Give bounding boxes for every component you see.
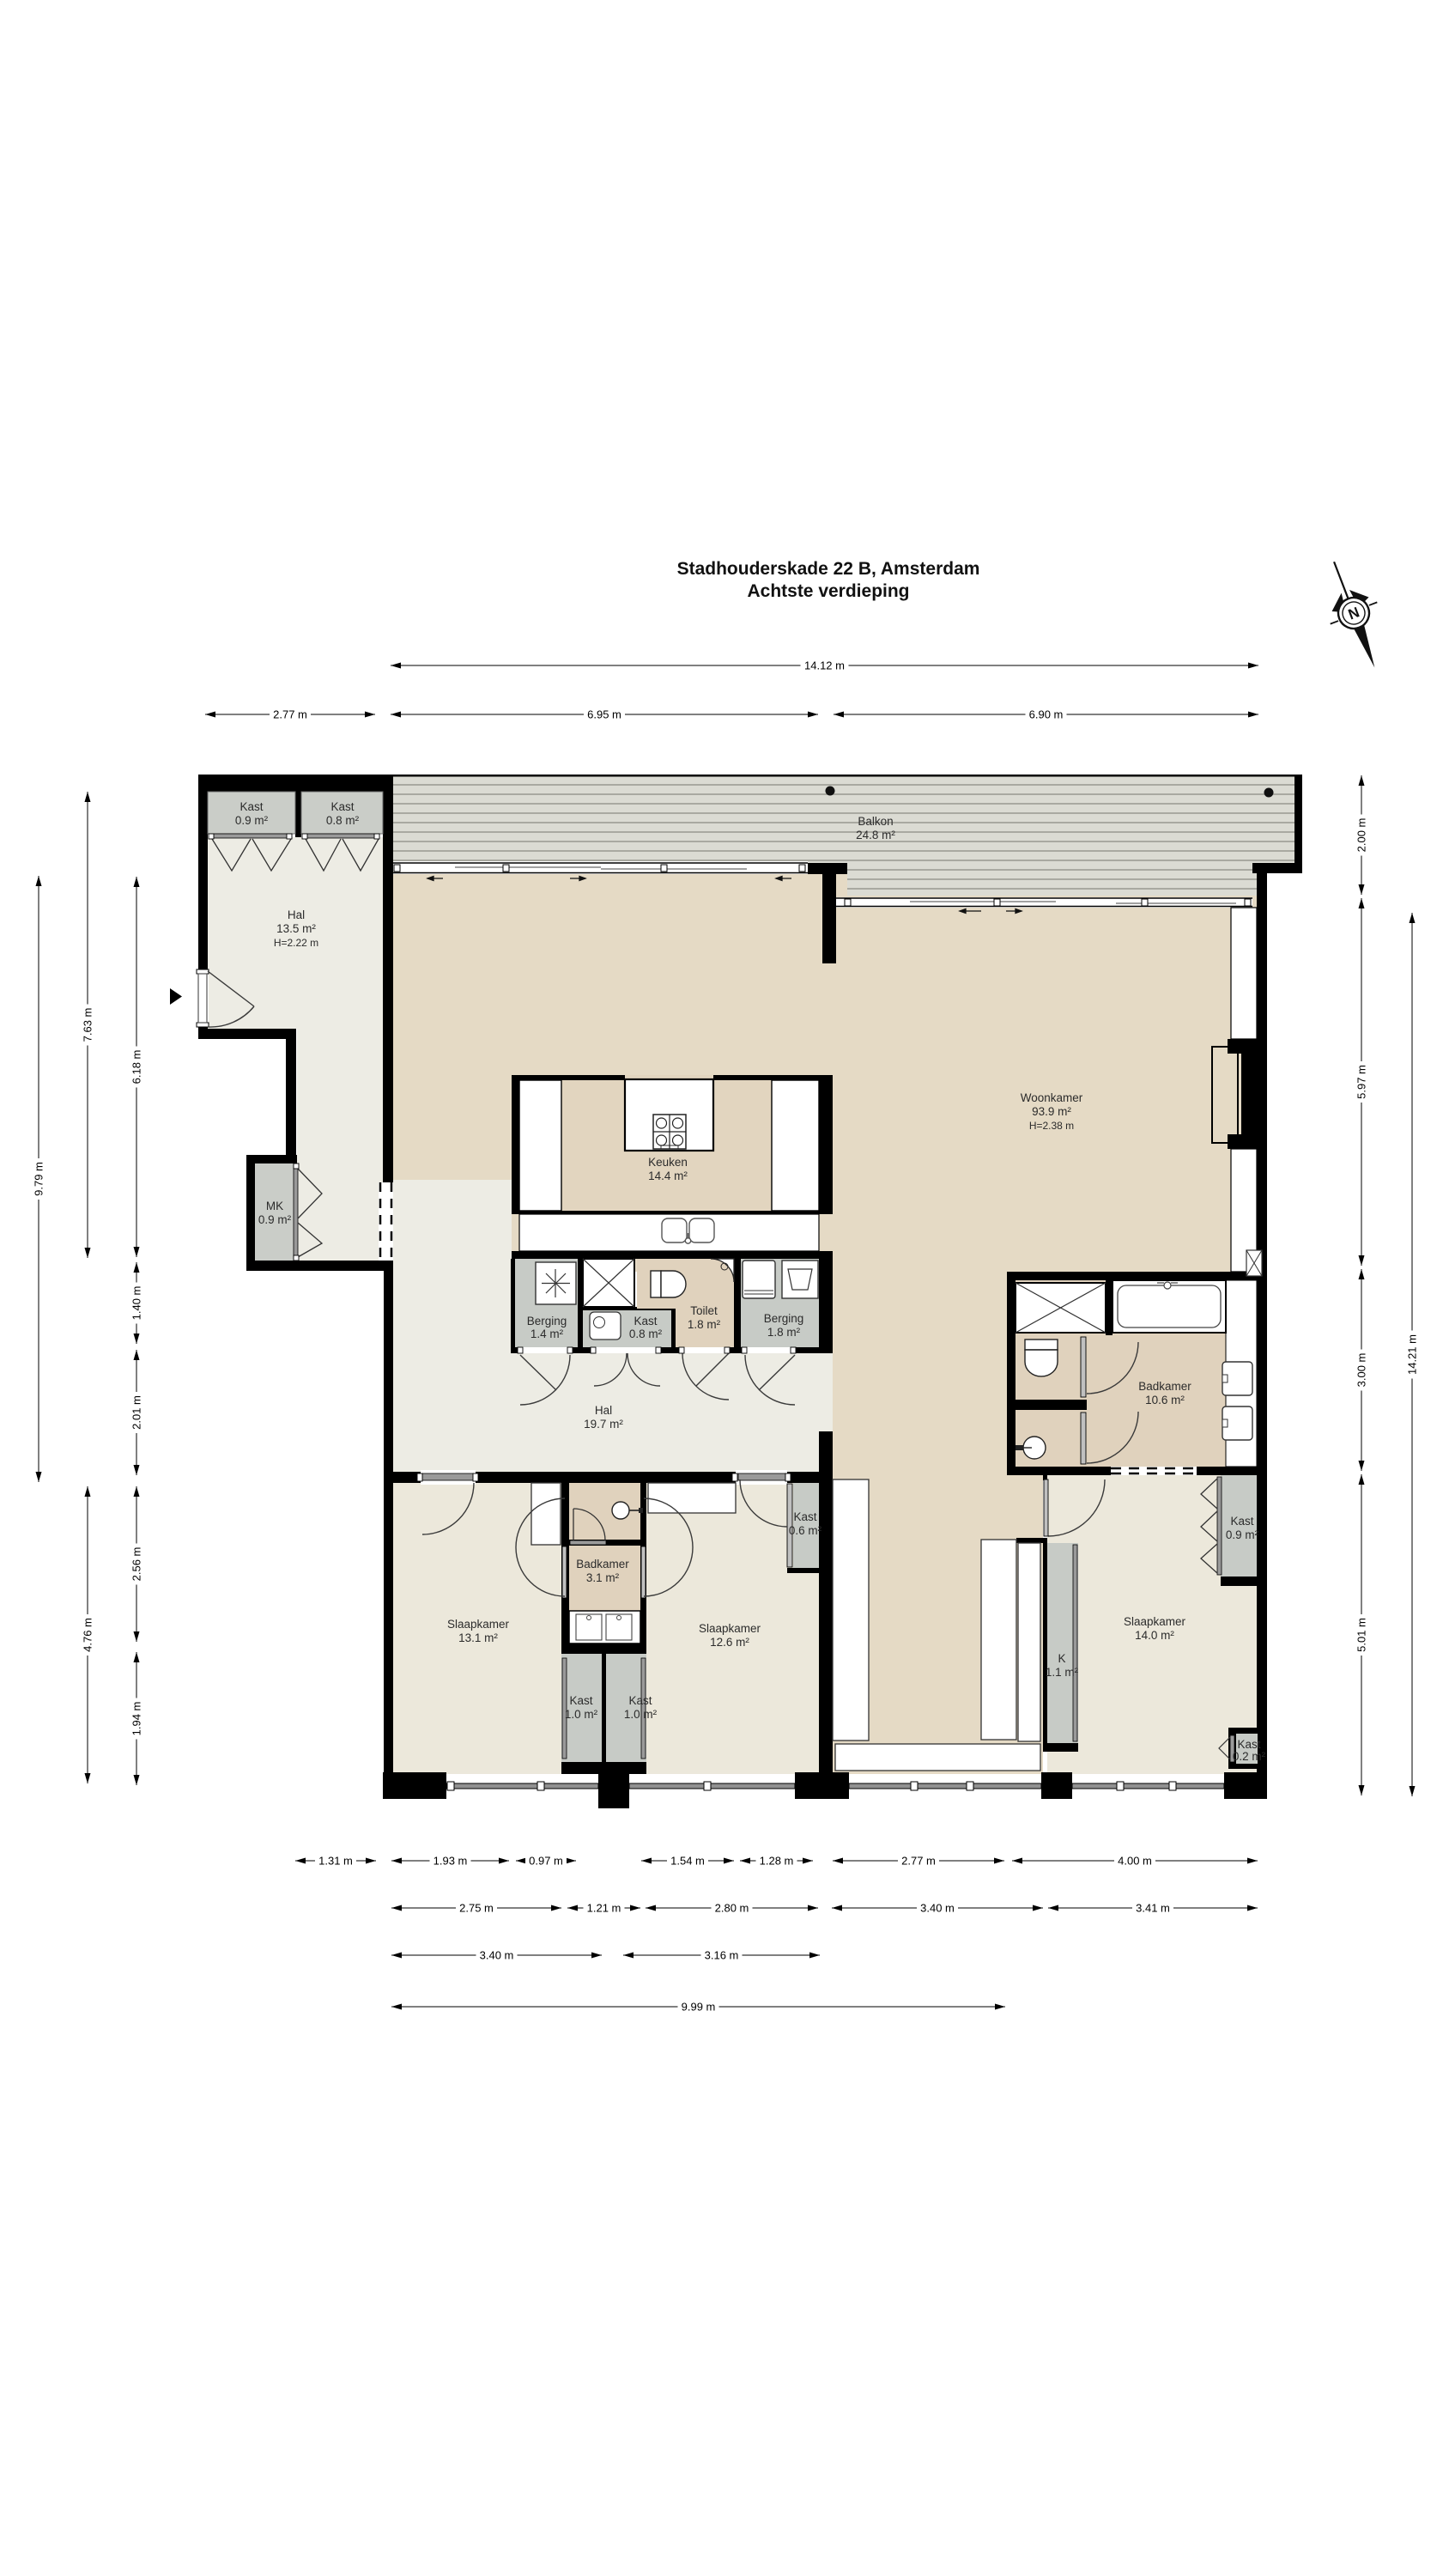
- svg-text:1.28 m: 1.28 m: [760, 1855, 794, 1868]
- svg-text:9.79 m: 9.79 m: [33, 1162, 45, 1196]
- svg-text:Berging: Berging: [527, 1315, 567, 1327]
- svg-text:Kast: Kast: [330, 800, 354, 813]
- svg-text:0.9 m²: 0.9 m²: [235, 814, 269, 827]
- svg-text:1.1 m²: 1.1 m²: [1046, 1666, 1079, 1679]
- svg-text:0.9 m²: 0.9 m²: [258, 1213, 292, 1226]
- svg-text:1.21 m: 1.21 m: [587, 1902, 621, 1915]
- svg-text:13.1 m²: 13.1 m²: [458, 1631, 498, 1644]
- svg-text:Stadhouderskade 22 B, Amsterda: Stadhouderskade 22 B, Amsterdam: [677, 559, 980, 579]
- svg-text:9.99 m: 9.99 m: [682, 2001, 716, 2014]
- svg-text:1.8 m²: 1.8 m²: [767, 1326, 801, 1339]
- svg-text:Woonkamer: Woonkamer: [1021, 1091, 1083, 1104]
- svg-text:2.01 m: 2.01 m: [130, 1395, 143, 1430]
- svg-text:Hal: Hal: [288, 908, 305, 921]
- svg-text:3.40 m: 3.40 m: [920, 1902, 955, 1915]
- svg-text:Balkon: Balkon: [858, 815, 893, 828]
- svg-text:2.75 m: 2.75 m: [459, 1902, 494, 1915]
- svg-text:3.00 m: 3.00 m: [1355, 1353, 1368, 1388]
- svg-text:0.8 m²: 0.8 m²: [629, 1327, 663, 1340]
- svg-text:Berging: Berging: [764, 1312, 804, 1325]
- svg-text:Kast: Kast: [1230, 1515, 1253, 1528]
- svg-text:1.94 m: 1.94 m: [130, 1702, 143, 1736]
- svg-text:5.01 m: 5.01 m: [1355, 1618, 1368, 1652]
- svg-text:13.5 m²: 13.5 m²: [276, 922, 316, 935]
- svg-text:6.90 m: 6.90 m: [1029, 708, 1064, 721]
- svg-text:5.97 m: 5.97 m: [1355, 1065, 1368, 1099]
- svg-text:Slaapkamer: Slaapkamer: [699, 1622, 761, 1635]
- svg-text:Kast: Kast: [569, 1694, 592, 1707]
- svg-text:3.1 m²: 3.1 m²: [586, 1571, 620, 1584]
- svg-text:Kast: Kast: [793, 1510, 816, 1523]
- svg-text:2.56 m: 2.56 m: [130, 1547, 143, 1582]
- svg-text:2.77 m: 2.77 m: [273, 708, 307, 721]
- svg-text:1.40 m: 1.40 m: [130, 1286, 143, 1321]
- svg-text:0.97 m: 0.97 m: [529, 1855, 563, 1868]
- svg-text:H=2.38 m: H=2.38 m: [1029, 1120, 1074, 1132]
- svg-text:Kast: Kast: [1237, 1738, 1260, 1751]
- svg-text:Hal: Hal: [595, 1404, 612, 1417]
- svg-text:Badkamer: Badkamer: [1138, 1380, 1191, 1393]
- svg-text:7.63 m: 7.63 m: [82, 1008, 94, 1042]
- svg-text:0.9 m²: 0.9 m²: [1226, 1528, 1259, 1541]
- svg-text:0.8 m²: 0.8 m²: [326, 814, 360, 827]
- svg-text:1.54 m: 1.54 m: [670, 1855, 705, 1868]
- svg-text:2.77 m: 2.77 m: [901, 1855, 936, 1868]
- svg-text:3.41 m: 3.41 m: [1136, 1902, 1170, 1915]
- svg-text:10.6 m²: 10.6 m²: [1145, 1394, 1185, 1406]
- svg-text:14.21 m: 14.21 m: [1406, 1334, 1419, 1375]
- svg-text:1.8 m²: 1.8 m²: [688, 1318, 721, 1331]
- svg-text:H=2.22 m: H=2.22 m: [274, 937, 318, 949]
- svg-text:12.6 m²: 12.6 m²: [710, 1636, 749, 1649]
- svg-text:3.16 m: 3.16 m: [705, 1949, 739, 1962]
- svg-text:14.4 m²: 14.4 m²: [648, 1170, 688, 1182]
- svg-text:Badkamer: Badkamer: [576, 1558, 629, 1571]
- svg-text:Slaapkamer: Slaapkamer: [447, 1618, 510, 1631]
- svg-text:2.00 m: 2.00 m: [1355, 818, 1368, 853]
- svg-text:6.95 m: 6.95 m: [587, 708, 621, 721]
- svg-text:2.80 m: 2.80 m: [715, 1902, 749, 1915]
- svg-text:4.00 m: 4.00 m: [1118, 1855, 1152, 1868]
- svg-text:6.18 m: 6.18 m: [130, 1050, 143, 1084]
- svg-text:1.0 m²: 1.0 m²: [624, 1708, 658, 1721]
- svg-text:MK: MK: [266, 1200, 283, 1212]
- svg-text:24.8 m²: 24.8 m²: [856, 829, 895, 841]
- svg-text:93.9 m²: 93.9 m²: [1032, 1105, 1071, 1118]
- svg-text:3.40 m: 3.40 m: [480, 1949, 514, 1962]
- svg-text:Toilet: Toilet: [690, 1304, 718, 1317]
- svg-text:14.12 m: 14.12 m: [804, 659, 845, 672]
- svg-text:1.0 m²: 1.0 m²: [565, 1708, 598, 1721]
- svg-text:19.7 m²: 19.7 m²: [584, 1418, 623, 1431]
- svg-text:1.31 m: 1.31 m: [318, 1855, 353, 1868]
- svg-text:K: K: [1058, 1652, 1065, 1665]
- svg-text:4.76 m: 4.76 m: [82, 1618, 94, 1652]
- svg-text:Kast: Kast: [634, 1315, 657, 1327]
- svg-text:0.2 m²: 0.2 m²: [1233, 1750, 1266, 1763]
- svg-text:Keuken: Keuken: [648, 1156, 688, 1169]
- svg-text:1.4 m²: 1.4 m²: [530, 1327, 564, 1340]
- svg-text:Achtste verdieping: Achtste verdieping: [747, 581, 909, 601]
- svg-text:Kast: Kast: [239, 800, 263, 813]
- svg-text:Slaapkamer: Slaapkamer: [1124, 1615, 1186, 1628]
- svg-text:0.6 m²: 0.6 m²: [789, 1524, 822, 1537]
- svg-text:Kast: Kast: [628, 1694, 652, 1707]
- svg-text:14.0 m²: 14.0 m²: [1135, 1629, 1174, 1642]
- svg-text:1.93 m: 1.93 m: [433, 1855, 468, 1868]
